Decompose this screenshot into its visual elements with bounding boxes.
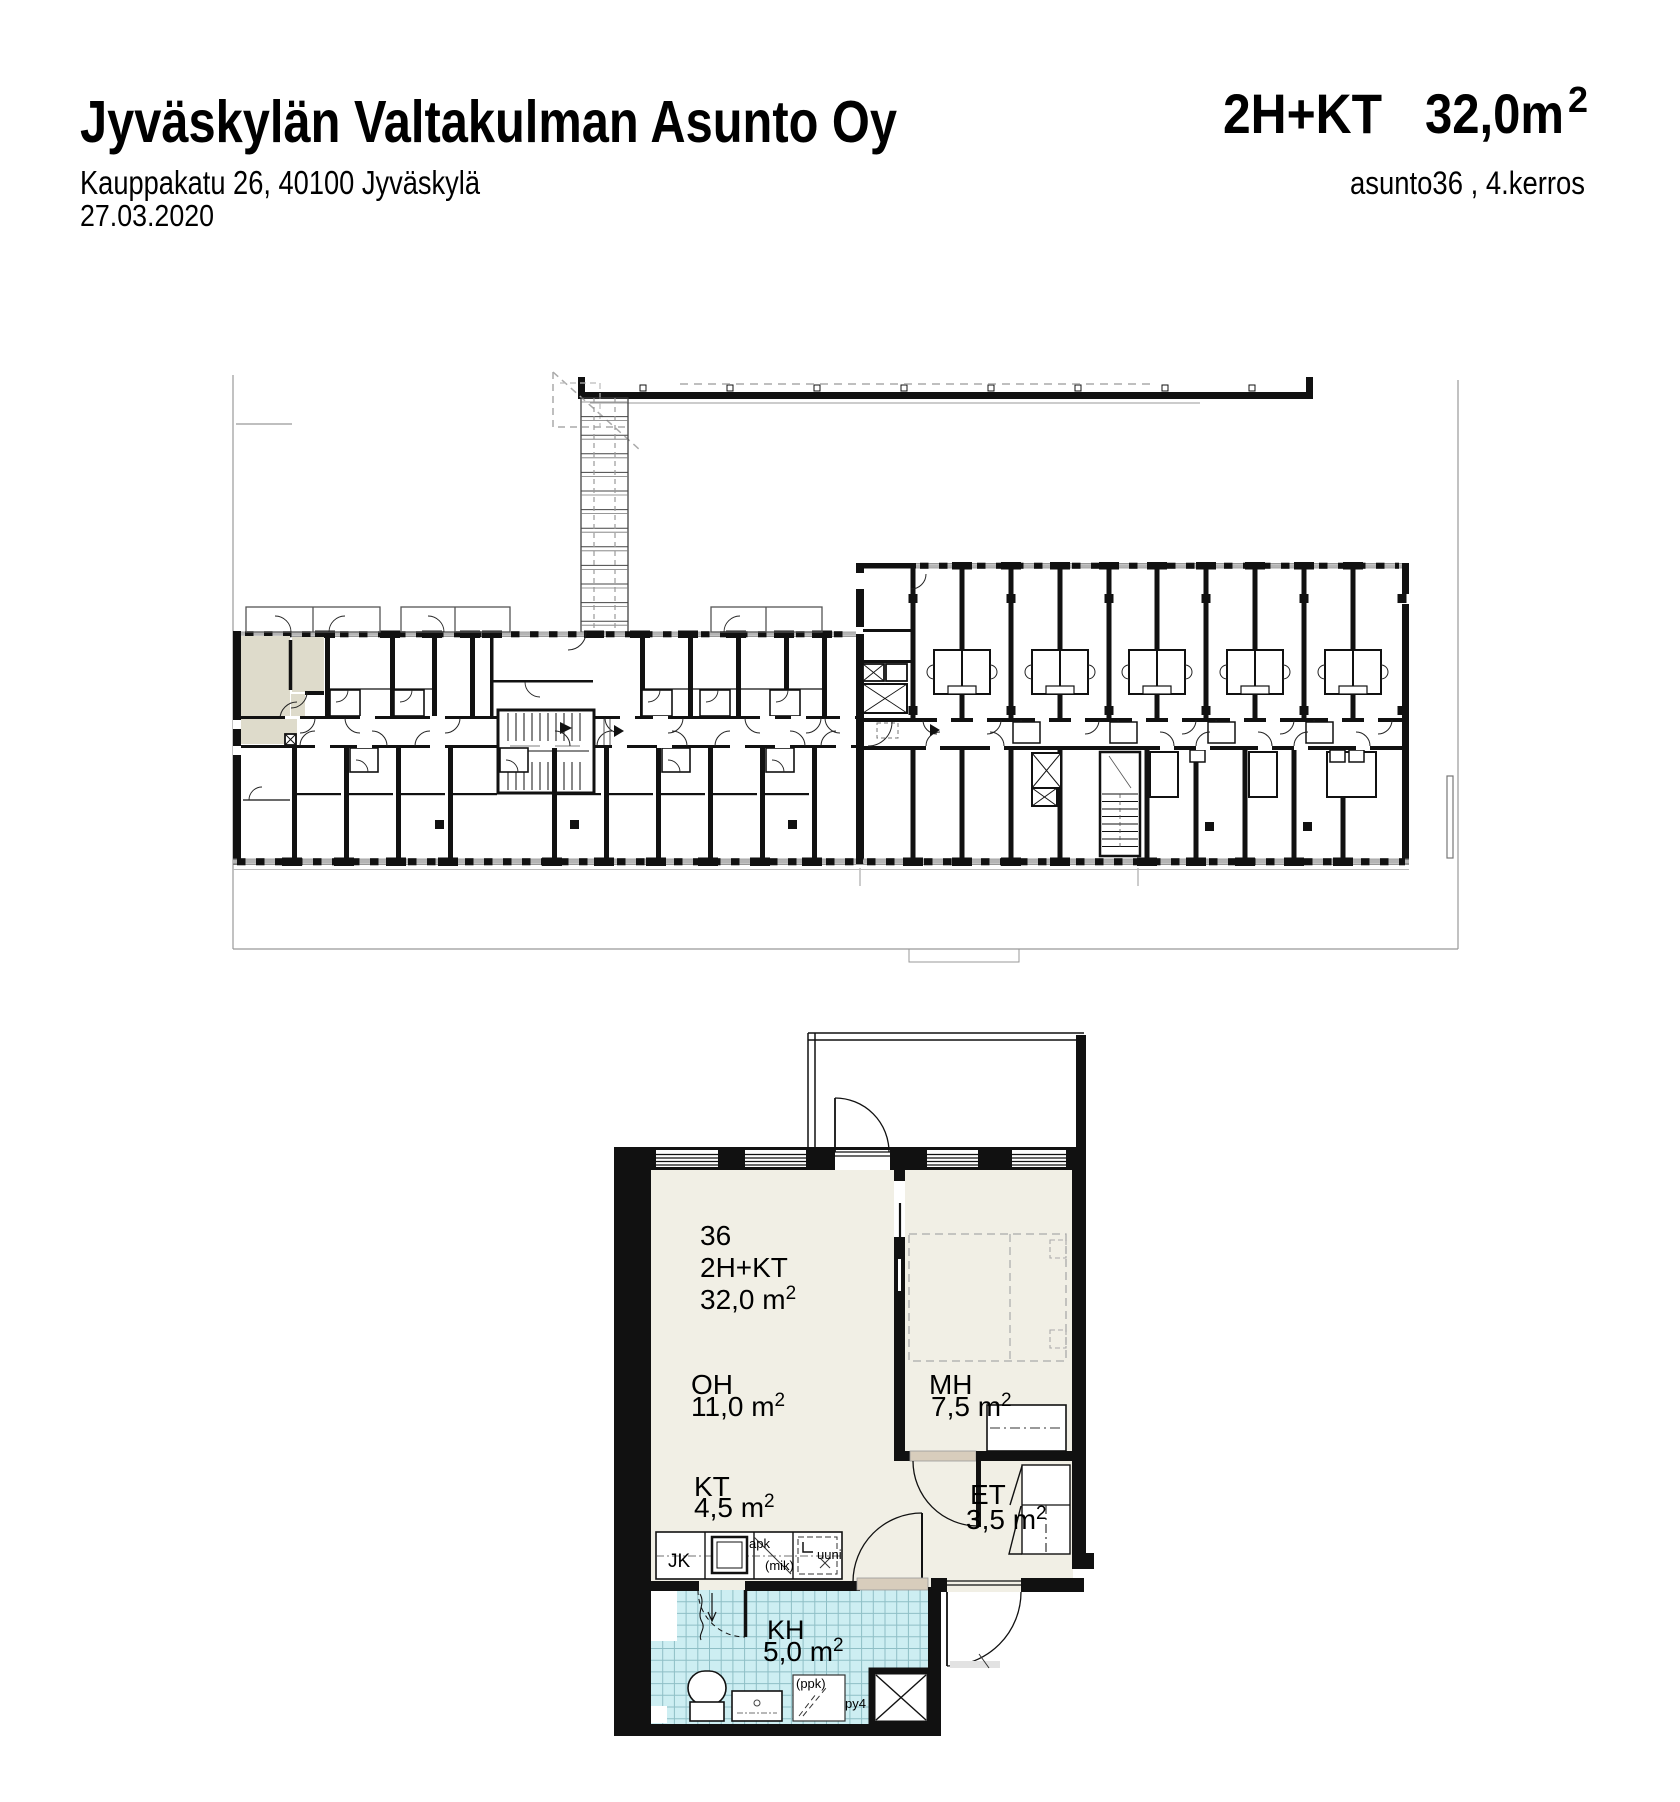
svg-text:JK: JK [668,1551,691,1572]
svg-text:5,0 m2: 5,0 m2 [763,1635,844,1667]
svg-text:Kauppakatu 26, 40100 Jyväskylä: Kauppakatu 26, 40100 Jyväskylä [80,164,481,201]
svg-text:3,5 m2: 3,5 m2 [966,1503,1047,1535]
svg-text:Jyväskylän Valtakulman Asunto: Jyväskylän Valtakulman Asunto Oy [80,89,897,155]
svg-text:7,5 m2: 7,5 m2 [931,1390,1012,1422]
svg-text:36: 36 [700,1220,731,1251]
svg-text:asunto36 , 4.kerros: asunto36 , 4.kerros [1350,165,1585,201]
svg-text:32,0 m2: 32,0 m2 [700,1283,796,1315]
svg-text:4,5 m2: 4,5 m2 [694,1491,775,1523]
svg-text:27.03.2020: 27.03.2020 [80,198,214,233]
svg-text:(mik): (mik) [765,1558,794,1573]
svg-text:2: 2 [1568,79,1588,120]
svg-text:apk: apk [749,1536,770,1551]
svg-text:2H+KT: 2H+KT [1223,82,1382,145]
svg-text:uuni: uuni [817,1547,842,1562]
svg-text:(ppk): (ppk) [796,1676,826,1691]
svg-text:2H+KT: 2H+KT [700,1252,788,1283]
svg-text:32,0m: 32,0m [1425,82,1564,145]
svg-text:py4: py4 [845,1696,866,1711]
svg-text:11,0 m2: 11,0 m2 [691,1390,785,1422]
